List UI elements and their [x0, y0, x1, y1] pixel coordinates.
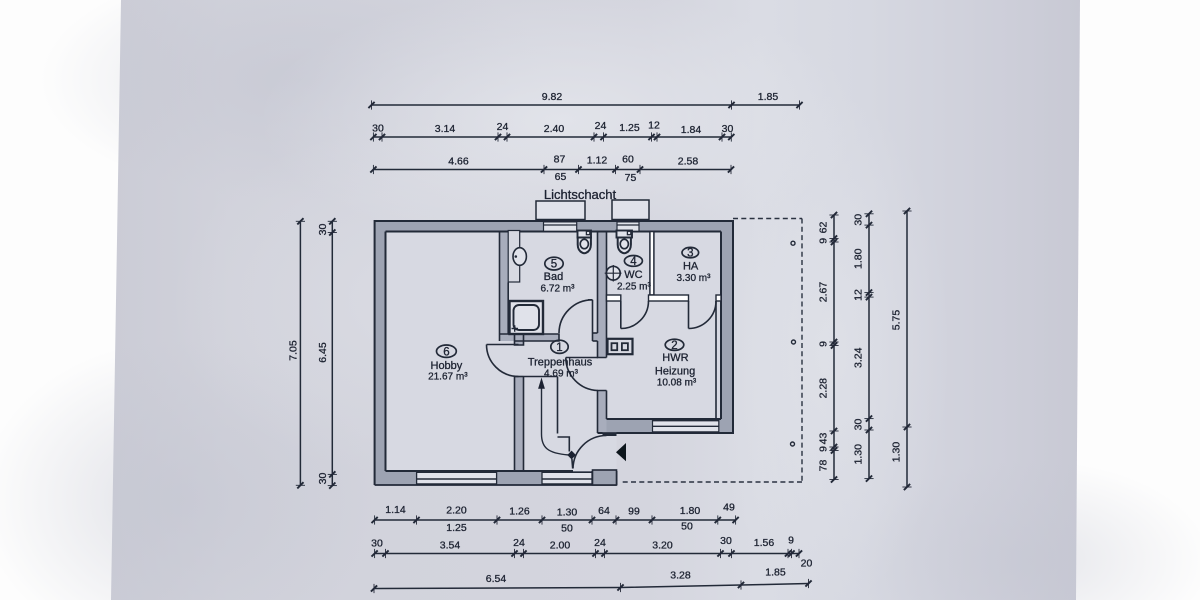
- svg-text:1.25: 1.25: [619, 122, 640, 134]
- svg-text:10.08 m³: 10.08 m³: [657, 378, 697, 389]
- svg-text:1.26: 1.26: [509, 506, 530, 518]
- svg-text:1.30: 1.30: [853, 444, 865, 465]
- svg-text:75: 75: [625, 172, 637, 184]
- svg-text:43: 43: [818, 433, 830, 445]
- svg-text:1.12: 1.12: [587, 155, 608, 167]
- svg-text:30: 30: [853, 214, 865, 226]
- svg-text:78: 78: [818, 460, 830, 472]
- svg-text:9.82: 9.82: [542, 91, 563, 103]
- svg-text:3.20: 3.20: [652, 540, 673, 552]
- svg-text:7.05: 7.05: [288, 340, 300, 361]
- svg-text:1.30: 1.30: [557, 507, 578, 519]
- svg-text:WC: WC: [624, 269, 642, 281]
- svg-text:9: 9: [818, 446, 830, 452]
- svg-text:1.56: 1.56: [754, 537, 775, 549]
- svg-text:30: 30: [317, 473, 329, 485]
- svg-text:20: 20: [801, 558, 813, 570]
- svg-text:Heizung: Heizung: [655, 366, 695, 378]
- svg-text:2.40: 2.40: [544, 123, 565, 135]
- svg-text:HA: HA: [683, 261, 699, 273]
- svg-text:30: 30: [722, 123, 734, 135]
- svg-text:Hobby: Hobby: [431, 360, 463, 372]
- svg-text:2.58: 2.58: [678, 156, 699, 168]
- svg-text:60: 60: [622, 154, 634, 166]
- svg-text:30: 30: [371, 538, 383, 550]
- svg-text:1.80: 1.80: [680, 505, 701, 517]
- svg-text:1.80: 1.80: [853, 248, 865, 269]
- svg-text:99: 99: [628, 506, 640, 518]
- svg-text:3.24: 3.24: [853, 347, 865, 368]
- svg-text:HWR: HWR: [662, 352, 688, 364]
- svg-text:3.28: 3.28: [670, 570, 691, 582]
- svg-text:6.54: 6.54: [486, 573, 507, 585]
- svg-text:Bad: Bad: [544, 271, 564, 283]
- svg-text:1.14: 1.14: [385, 504, 406, 516]
- svg-text:30: 30: [317, 224, 329, 236]
- svg-text:2: 2: [671, 340, 677, 352]
- svg-text:5.75: 5.75: [891, 310, 903, 331]
- svg-text:1.84: 1.84: [681, 124, 702, 136]
- svg-text:87: 87: [554, 154, 566, 166]
- svg-text:9: 9: [788, 535, 794, 547]
- svg-text:2.25 m³: 2.25 m³: [617, 282, 652, 293]
- svg-text:1: 1: [556, 342, 562, 354]
- svg-text:2.67: 2.67: [818, 282, 830, 303]
- svg-text:62: 62: [818, 222, 830, 234]
- svg-text:24: 24: [594, 537, 606, 549]
- svg-text:2.28: 2.28: [818, 378, 830, 399]
- svg-text:Lichtschacht: Lichtschacht: [544, 187, 617, 202]
- svg-text:49: 49: [723, 502, 735, 514]
- svg-text:21.67 m³: 21.67 m³: [428, 372, 468, 383]
- svg-text:12: 12: [648, 120, 660, 132]
- svg-text:1.25: 1.25: [446, 522, 467, 534]
- svg-text:3.30 m³: 3.30 m³: [677, 273, 712, 284]
- svg-text:4.66: 4.66: [448, 156, 469, 168]
- svg-text:3.54: 3.54: [440, 540, 461, 552]
- svg-text:12: 12: [853, 289, 865, 301]
- svg-text:9: 9: [818, 238, 830, 244]
- svg-text:3: 3: [687, 248, 693, 260]
- svg-text:6.72 m³: 6.72 m³: [541, 284, 576, 295]
- svg-text:Treppenhaus: Treppenhaus: [528, 357, 593, 369]
- svg-text:64: 64: [598, 505, 610, 517]
- svg-text:30: 30: [720, 535, 732, 547]
- svg-text:9: 9: [818, 341, 830, 347]
- svg-text:24: 24: [595, 120, 607, 132]
- svg-text:30: 30: [372, 123, 384, 135]
- svg-text:2.20: 2.20: [446, 505, 467, 517]
- svg-text:5: 5: [551, 259, 557, 271]
- svg-text:1.85: 1.85: [758, 91, 779, 103]
- svg-text:50: 50: [681, 521, 693, 533]
- svg-text:6.45: 6.45: [317, 342, 329, 363]
- svg-text:1.30: 1.30: [891, 442, 903, 463]
- svg-text:24: 24: [497, 121, 509, 133]
- svg-text:6: 6: [443, 346, 449, 358]
- svg-text:3.14: 3.14: [435, 123, 456, 135]
- svg-text:2.00: 2.00: [550, 540, 571, 552]
- svg-text:50: 50: [561, 523, 573, 535]
- svg-text:4: 4: [630, 256, 637, 268]
- svg-text:1.85: 1.85: [765, 567, 786, 579]
- svg-text:65: 65: [555, 171, 567, 183]
- svg-text:4.69 m³: 4.69 m³: [544, 369, 579, 380]
- svg-text:30: 30: [853, 419, 865, 431]
- svg-text:24: 24: [513, 537, 525, 549]
